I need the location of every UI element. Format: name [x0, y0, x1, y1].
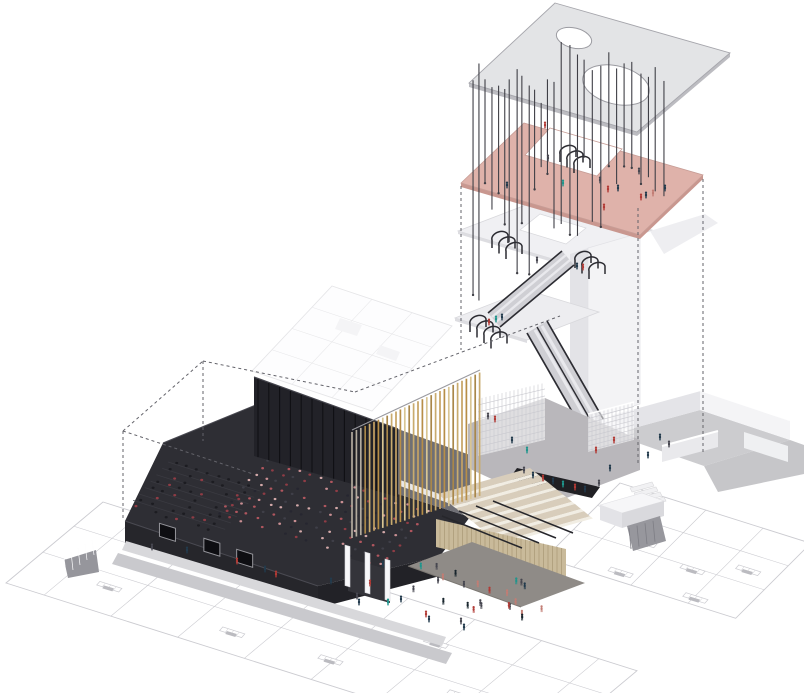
audience-dot — [324, 505, 327, 507]
person-body — [582, 266, 584, 269]
seat-dot — [191, 516, 194, 518]
person-leg — [358, 603, 359, 605]
person-leg — [502, 318, 503, 320]
person-leg — [506, 594, 507, 596]
audience-dot — [295, 536, 298, 538]
audience-dot — [303, 480, 306, 482]
audience-dot — [224, 505, 227, 507]
person-leg — [467, 607, 468, 609]
plan-outline — [545, 483, 804, 618]
audience-dot — [284, 501, 287, 503]
person-body — [463, 626, 465, 629]
person-leg — [443, 603, 444, 605]
person-body — [473, 608, 475, 611]
seat-dot — [161, 490, 164, 492]
person-leg — [477, 585, 478, 587]
person-leg — [187, 551, 188, 553]
person-head — [547, 155, 549, 157]
audience-dot — [377, 554, 380, 556]
rod-tip — [497, 192, 499, 194]
rod-tip — [608, 165, 610, 167]
audience-dot — [261, 526, 264, 528]
person-figure — [544, 122, 546, 129]
audience-dot — [307, 507, 310, 509]
person-leg — [456, 575, 457, 577]
person-leg — [577, 267, 578, 269]
audience-dot — [354, 548, 357, 550]
audience-dot — [372, 544, 375, 546]
person-head — [369, 580, 371, 582]
entry-pillar — [365, 552, 370, 594]
audience-dot — [365, 535, 368, 537]
person-body — [645, 194, 647, 197]
person-figure — [472, 606, 474, 613]
person-leg — [648, 456, 649, 458]
person-body — [420, 565, 422, 568]
person-body — [330, 580, 332, 583]
person-body — [488, 321, 490, 324]
person-head — [442, 573, 444, 575]
seat-dot — [247, 484, 250, 486]
person-head — [664, 185, 666, 187]
person-leg — [639, 172, 640, 174]
rod-tip — [631, 167, 633, 169]
person-leg — [330, 582, 331, 584]
audience-dot — [263, 493, 266, 495]
person-leg — [608, 190, 609, 192]
person-leg — [357, 597, 358, 599]
exploded-axonometric-diagram — [0, 0, 804, 693]
person-figure — [467, 602, 469, 609]
audience-dot — [366, 517, 369, 519]
entry-pillar — [345, 545, 350, 587]
seat-dot — [243, 491, 246, 493]
person-head — [617, 185, 619, 187]
person-head — [487, 413, 489, 415]
person-body — [523, 469, 525, 472]
audience-dot — [388, 541, 391, 543]
seat-dot — [215, 506, 218, 508]
seat-dot — [189, 475, 192, 477]
person-leg — [638, 172, 639, 174]
person-body — [488, 589, 490, 592]
person-leg — [563, 184, 564, 186]
person-leg — [542, 610, 543, 612]
person-body — [506, 591, 508, 594]
person-leg — [537, 261, 538, 263]
person-leg — [151, 548, 152, 550]
person-body — [356, 595, 358, 598]
person-leg — [515, 582, 516, 584]
person-leg — [532, 476, 533, 478]
floor-plan-lower-right — [545, 483, 804, 618]
person-head — [428, 616, 430, 618]
person-leg — [425, 615, 426, 617]
person-leg — [501, 318, 502, 320]
person-leg — [604, 208, 605, 210]
person-body — [382, 563, 384, 566]
person-head — [467, 602, 469, 604]
audience-dot — [305, 539, 308, 541]
audience-dot — [298, 470, 301, 472]
audience-dot — [274, 480, 277, 482]
person-leg — [487, 417, 488, 419]
person-body — [520, 581, 522, 584]
audience-dot — [253, 506, 256, 508]
person-head — [524, 582, 526, 584]
person-leg — [562, 485, 563, 487]
person-leg — [442, 578, 443, 580]
person-figure — [442, 573, 444, 580]
person-body — [463, 583, 465, 586]
person-leg — [607, 190, 608, 192]
person-body — [532, 474, 534, 477]
person-body — [617, 187, 619, 190]
person-leg — [356, 597, 357, 599]
person-leg — [512, 441, 513, 443]
person-body — [524, 584, 526, 587]
person-body — [358, 601, 360, 604]
person-body — [541, 607, 543, 610]
person-leg — [646, 196, 647, 198]
audience-dot — [284, 533, 287, 535]
person-leg — [574, 488, 575, 490]
audience-dot — [330, 481, 333, 483]
person-body — [515, 600, 517, 603]
person-body — [542, 477, 544, 480]
person-leg — [526, 451, 527, 453]
person-leg — [544, 126, 545, 128]
audience-dot — [392, 550, 395, 552]
seat-dot — [237, 498, 240, 500]
person-figure — [536, 257, 538, 264]
person-head — [442, 598, 444, 600]
seat-dot — [221, 484, 224, 486]
seat-dot — [185, 465, 188, 467]
audience-dot — [285, 483, 288, 485]
person-head — [236, 558, 238, 560]
person-leg — [599, 484, 600, 486]
seat-dot — [227, 478, 230, 480]
person-leg — [562, 184, 563, 186]
person-head — [454, 570, 456, 572]
seat-dot — [173, 494, 176, 496]
audience-dot — [257, 517, 260, 519]
person-leg — [369, 584, 370, 586]
audience-dot — [346, 494, 349, 496]
person-head — [640, 194, 642, 196]
person-leg — [600, 181, 601, 183]
person-head — [488, 319, 490, 321]
person-leg — [521, 583, 522, 585]
person-leg — [576, 267, 577, 269]
person-leg — [652, 194, 653, 196]
person-leg — [511, 441, 512, 443]
person-leg — [265, 570, 266, 572]
person-leg — [464, 628, 465, 630]
person-leg — [599, 181, 600, 183]
person-leg — [522, 583, 523, 585]
audience-dot — [248, 497, 251, 499]
person-leg — [460, 622, 461, 624]
person-leg — [489, 323, 490, 325]
audience-dot — [254, 490, 257, 492]
person-leg — [524, 587, 525, 589]
person-leg — [383, 565, 384, 567]
person-head — [584, 486, 586, 488]
person-head — [506, 182, 508, 184]
audience-dot — [291, 476, 294, 478]
person-leg — [585, 490, 586, 492]
audience-dot — [239, 520, 242, 522]
person-leg — [641, 198, 642, 200]
audience-dot — [270, 488, 273, 490]
seat-dot — [175, 518, 178, 520]
audience-dot — [242, 486, 245, 488]
person-head — [330, 578, 332, 580]
person-leg — [494, 420, 495, 422]
person-head — [463, 581, 465, 583]
person-head — [472, 606, 474, 608]
person-head — [652, 190, 654, 192]
audience-dot — [303, 497, 306, 499]
seat-dot — [211, 481, 214, 483]
person-body — [574, 486, 576, 489]
person-body — [494, 418, 496, 421]
person-leg — [598, 484, 599, 486]
seat-dot — [183, 482, 186, 484]
audience-dot — [255, 474, 258, 476]
rod-tip — [546, 173, 548, 175]
audience-dot — [344, 511, 347, 513]
person-leg — [461, 622, 462, 624]
person-head — [542, 475, 544, 477]
audience-dot — [342, 543, 345, 545]
audience-dot — [319, 511, 322, 513]
person-leg — [426, 615, 427, 617]
person-body — [425, 613, 427, 616]
person-head — [494, 416, 496, 418]
person-leg — [382, 565, 383, 567]
person-head — [511, 437, 513, 439]
person-leg — [617, 189, 618, 191]
person-head — [479, 599, 481, 601]
person-body — [487, 415, 489, 418]
seat-dot — [156, 481, 159, 483]
person-head — [520, 579, 522, 581]
seat-dot — [169, 468, 172, 470]
entry-pillar — [385, 559, 390, 601]
audience-dot — [305, 522, 308, 524]
person-figure — [647, 452, 649, 459]
person-body — [664, 187, 666, 190]
audience-dot — [218, 512, 221, 514]
person-leg — [645, 196, 646, 198]
seat-dot — [206, 472, 209, 474]
person-leg — [527, 451, 528, 453]
person-leg — [563, 485, 564, 487]
person-leg — [275, 575, 276, 577]
person-head — [582, 264, 584, 266]
person-head — [521, 614, 523, 616]
tower-core — [588, 233, 640, 420]
audience-dot — [335, 490, 338, 492]
person-leg — [463, 585, 464, 587]
person-leg — [438, 581, 439, 583]
person-head — [356, 593, 358, 595]
person-head — [437, 577, 439, 579]
person-head — [609, 465, 611, 467]
audience-dot — [279, 506, 282, 508]
diagram-canvas — [0, 0, 804, 693]
person-head — [477, 580, 479, 582]
person-body — [236, 560, 238, 563]
seat-dot — [151, 503, 154, 505]
person-body — [479, 601, 481, 604]
person-leg — [541, 610, 542, 612]
audience-dot — [272, 513, 275, 515]
seat-dot — [226, 510, 229, 512]
rod-tip — [600, 226, 602, 228]
person-head — [412, 585, 414, 587]
audience-dot — [328, 531, 331, 533]
person-leg — [468, 607, 469, 609]
person-leg — [387, 603, 388, 605]
person-leg — [521, 618, 522, 620]
person-body — [526, 449, 528, 452]
audience-dot — [381, 547, 384, 549]
person-leg — [436, 568, 437, 570]
person-body — [511, 439, 513, 442]
person-body — [467, 604, 469, 607]
seat-dot — [188, 506, 191, 508]
seat-dot — [193, 499, 196, 501]
person-leg — [264, 570, 265, 572]
person-leg — [152, 548, 153, 550]
audience-dot — [270, 504, 273, 506]
person-body — [442, 600, 444, 603]
person-leg — [659, 438, 660, 440]
audience-dot — [289, 510, 292, 512]
rod-tip — [472, 294, 474, 296]
person-leg — [595, 451, 596, 453]
person-leg — [533, 476, 534, 478]
seat-dot — [200, 479, 203, 481]
person-leg — [237, 562, 238, 564]
person-leg — [669, 445, 670, 447]
person-leg — [414, 590, 415, 592]
person-body — [603, 206, 605, 209]
person-leg — [464, 585, 465, 587]
person-leg — [478, 585, 479, 587]
person-head — [514, 598, 516, 600]
audience-dot — [394, 534, 397, 536]
person-body — [515, 579, 517, 582]
seat-dot — [165, 516, 168, 518]
person-leg — [664, 189, 665, 191]
person-leg — [506, 186, 507, 188]
audience-dot — [315, 526, 318, 528]
audience-dot — [262, 511, 265, 513]
person-body — [544, 124, 546, 127]
audience-dot — [236, 494, 239, 496]
person-head — [275, 571, 277, 573]
person-head — [552, 478, 554, 480]
person-head — [598, 480, 600, 482]
person-leg — [473, 611, 474, 613]
person-head — [186, 547, 188, 549]
person-leg — [545, 126, 546, 128]
person-leg — [428, 620, 429, 622]
person-leg — [488, 417, 489, 419]
person-leg — [495, 320, 496, 322]
person-leg — [490, 591, 491, 593]
audience-dot — [400, 528, 403, 530]
person-leg — [603, 208, 604, 210]
person-leg — [236, 562, 237, 564]
person-figure — [521, 614, 523, 621]
audience-dot — [331, 540, 334, 542]
audience-dot — [320, 477, 323, 479]
seat-dot — [168, 484, 171, 486]
audience-dot — [399, 544, 402, 546]
audience-dot — [324, 520, 327, 522]
audience-dot — [296, 504, 299, 506]
person-leg — [665, 189, 666, 191]
person-leg — [463, 628, 464, 630]
person-leg — [516, 603, 517, 605]
audience-dot — [288, 468, 291, 470]
seat-dot — [218, 515, 221, 517]
person-leg — [515, 603, 516, 605]
person-body — [595, 449, 597, 452]
audience-dot — [261, 467, 264, 469]
person-leg — [479, 604, 480, 606]
audience-dot — [325, 488, 328, 490]
person-body — [647, 454, 649, 457]
person-body — [640, 196, 642, 199]
seat-dot — [200, 493, 203, 495]
person-head — [599, 177, 601, 179]
person-figure — [540, 605, 542, 612]
person-leg — [400, 600, 401, 602]
person-head — [495, 316, 497, 318]
person-head — [358, 599, 360, 601]
person-body — [151, 546, 153, 549]
person-head — [645, 192, 647, 194]
seat-dot — [203, 519, 206, 521]
person-figure — [437, 577, 439, 584]
person-head — [638, 168, 640, 170]
person-leg — [516, 582, 517, 584]
person-leg — [614, 441, 615, 443]
person-body — [562, 483, 564, 486]
person-leg — [420, 567, 421, 569]
audience-dot — [335, 507, 338, 509]
seat-dot — [182, 513, 185, 515]
person-head — [668, 441, 670, 443]
person-leg — [496, 320, 497, 322]
audience-dot — [230, 500, 233, 502]
rod-tip — [504, 223, 506, 225]
seat-dot — [207, 528, 210, 530]
seat-dot — [217, 475, 220, 477]
person-leg — [553, 482, 554, 484]
seat-dot — [225, 493, 228, 495]
person-leg — [509, 607, 510, 609]
person-leg — [508, 607, 509, 609]
person-head — [526, 447, 528, 449]
